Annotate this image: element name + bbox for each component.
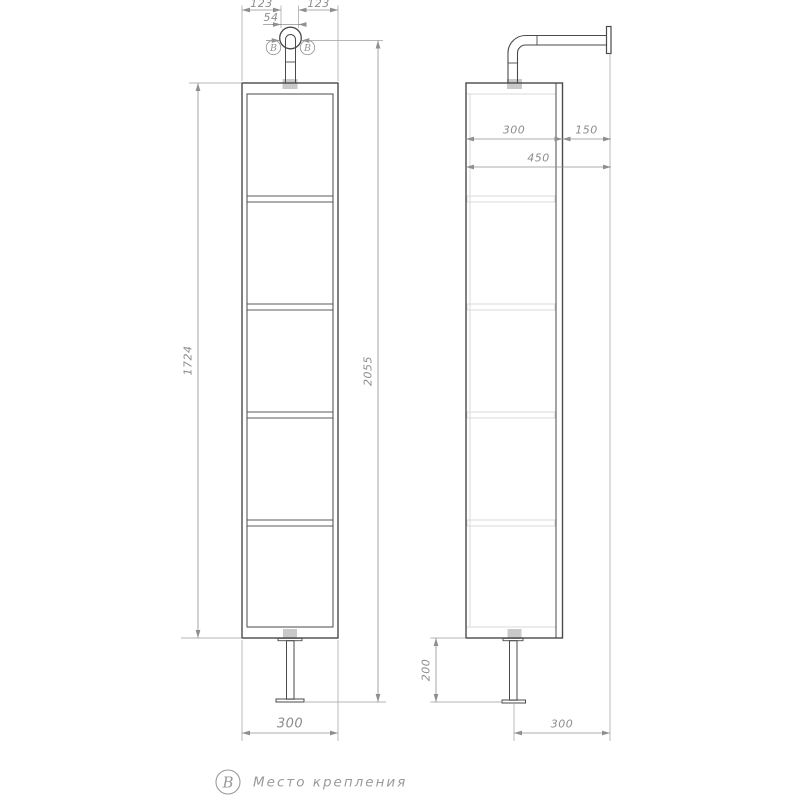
- dim-bottom-wall-offset-label: 300: [551, 718, 574, 731]
- pivot-ring: [280, 27, 302, 49]
- pipe-elbow-outer: [508, 36, 526, 54]
- front-leg-foot: [276, 699, 304, 702]
- note-legend: B Место крепления: [216, 770, 407, 794]
- side-leg: [502, 638, 526, 703]
- dim-wall-offset-label: 150: [575, 124, 598, 137]
- pipe-elbow-inner: [518, 45, 526, 53]
- front-bottom-mount-tab: [283, 629, 297, 638]
- dim-top-left-label: 123: [250, 0, 273, 10]
- dim-front-width-label: 300: [277, 717, 303, 732]
- side-cabinet-body: [466, 83, 563, 638]
- front-pivot-assembly: [280, 27, 302, 83]
- side-bottom-mount-tab: [508, 629, 522, 638]
- callout-right-label: B: [303, 43, 311, 54]
- dim-pin-label: 54: [264, 11, 279, 24]
- dim-total-height-label: 2055: [362, 356, 375, 386]
- dim-top-right-label: 123: [307, 0, 330, 10]
- wall-flange: [607, 27, 612, 54]
- dim-depth-label: 300: [503, 124, 526, 137]
- dim-front-height-label: 1724: [182, 346, 195, 376]
- front-leg: [276, 638, 304, 702]
- front-cabinet-body: [242, 83, 338, 638]
- note-text: Место крепления: [253, 775, 407, 791]
- side-leg-foot: [502, 700, 526, 703]
- note-callout-letter: B: [221, 774, 233, 792]
- dim-total-depth-label: 450: [527, 152, 550, 165]
- drawing-canvas: 123 123 54 B B 1724 2055 300 300 150: [0, 0, 800, 800]
- front-leg-post: [287, 641, 295, 700]
- front-view: [242, 27, 338, 702]
- pivot-pin: [286, 35, 296, 84]
- wall-bracket-pipe: [508, 27, 611, 84]
- callout-left-label: B: [269, 43, 277, 54]
- side-leg-post: [510, 641, 518, 701]
- side-top-mount-tab: [507, 79, 522, 89]
- dim-leg-height-label: 200: [420, 659, 433, 682]
- technical-drawing-page: 123 123 54 B B 1724 2055 300 300 150: [0, 0, 800, 800]
